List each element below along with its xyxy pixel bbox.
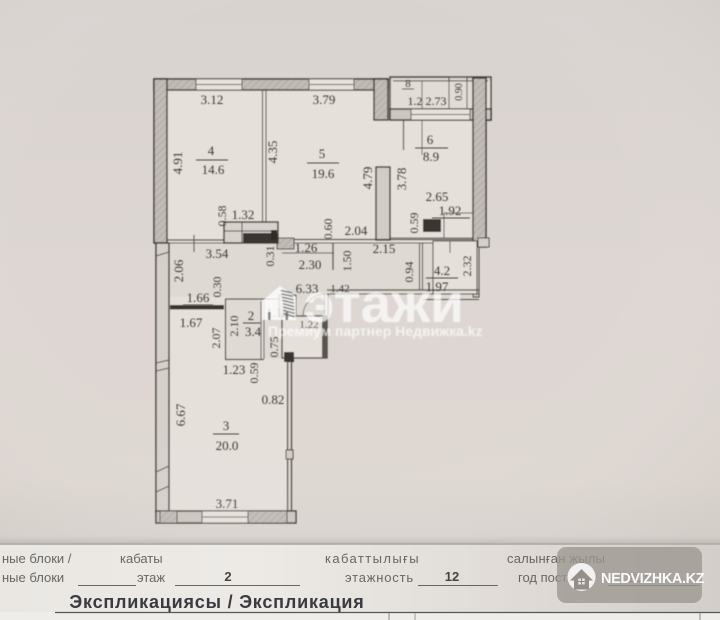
svg-text:12: 12	[445, 569, 459, 584]
svg-text:этаж: этаж	[137, 570, 165, 585]
svg-text:кабаты: кабаты	[120, 551, 163, 566]
svg-text:этажность: этажность	[345, 570, 414, 585]
svg-text:ные блоки: ные блоки	[2, 570, 64, 585]
svg-text:кабаттылығы: кабаттылығы	[325, 551, 420, 566]
svg-text:Экспликациясы / Экспликация: Экспликациясы / Экспликация	[69, 592, 364, 612]
svg-text:2: 2	[224, 569, 231, 584]
svg-text:NEDVIZHKA.KZ: NEDVIZHKA.KZ	[601, 571, 705, 587]
svg-text:ные блоки /: ные блоки /	[2, 551, 72, 566]
